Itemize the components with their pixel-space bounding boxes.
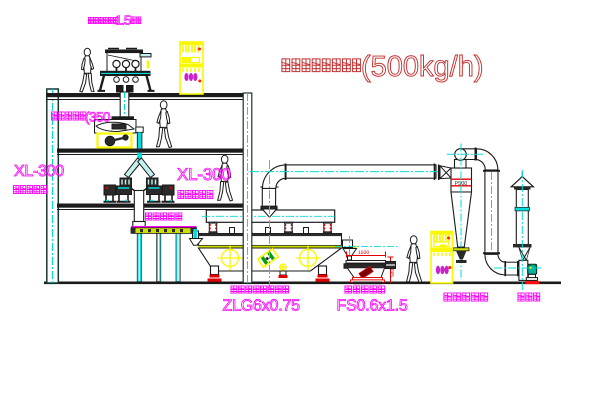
svg-text:XL-300: XL-300 <box>177 165 231 184</box>
svg-text:FS0.6x1.5: FS0.6x1.5 <box>337 298 408 315</box>
svg-text:XL-300: XL-300 <box>14 163 64 180</box>
svg-text:540: 540 <box>390 268 396 277</box>
svg-text:ZLG6x0.75: ZLG6x0.75 <box>223 298 301 315</box>
svg-text:1500: 1500 <box>358 250 369 256</box>
svg-text:(500kg/h): (500kg/h) <box>361 51 484 83</box>
svg-text:(350: (350 <box>85 110 110 125</box>
svg-text:1.5: 1.5 <box>115 13 131 28</box>
